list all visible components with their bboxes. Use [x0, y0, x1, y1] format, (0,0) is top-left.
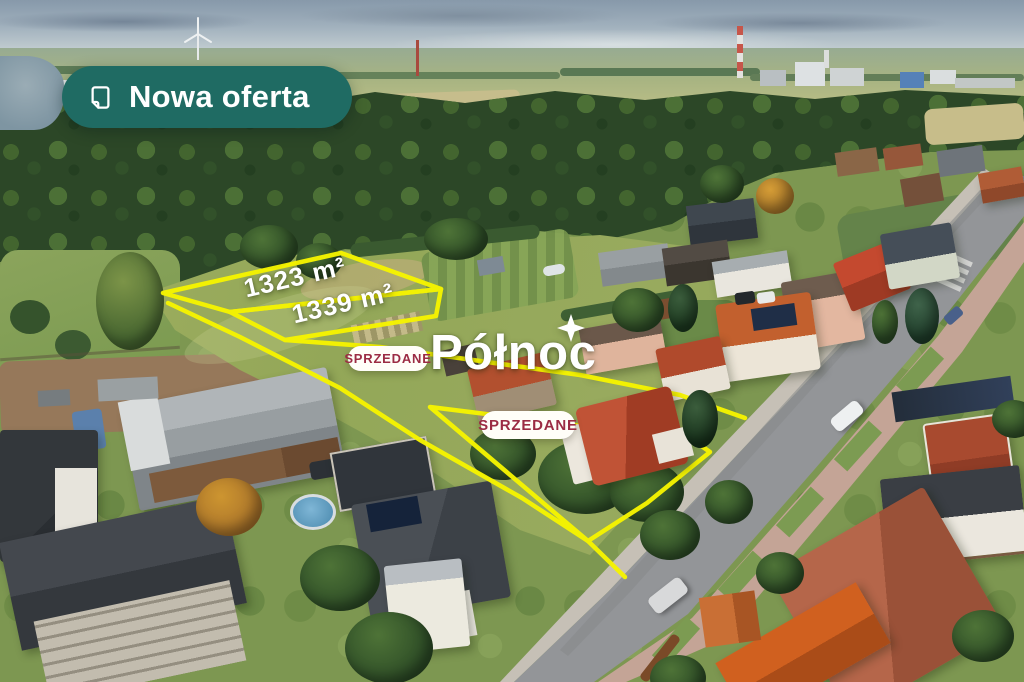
sold-badge: SPRZEDANE [481, 411, 575, 439]
new-offer-label: Nowa oferta [129, 79, 310, 115]
sold-badge: SPRZEDANE [348, 346, 428, 371]
sparkle-icon [556, 313, 586, 343]
aerial-listing-photo: 1323 m² 1339 m² Północ Nowa oferta SPRZE… [0, 0, 1024, 682]
spruce-tree [682, 390, 718, 448]
new-offer-badge: Nowa oferta [62, 66, 352, 128]
document-icon [87, 84, 114, 111]
boundary-line [588, 541, 625, 577]
